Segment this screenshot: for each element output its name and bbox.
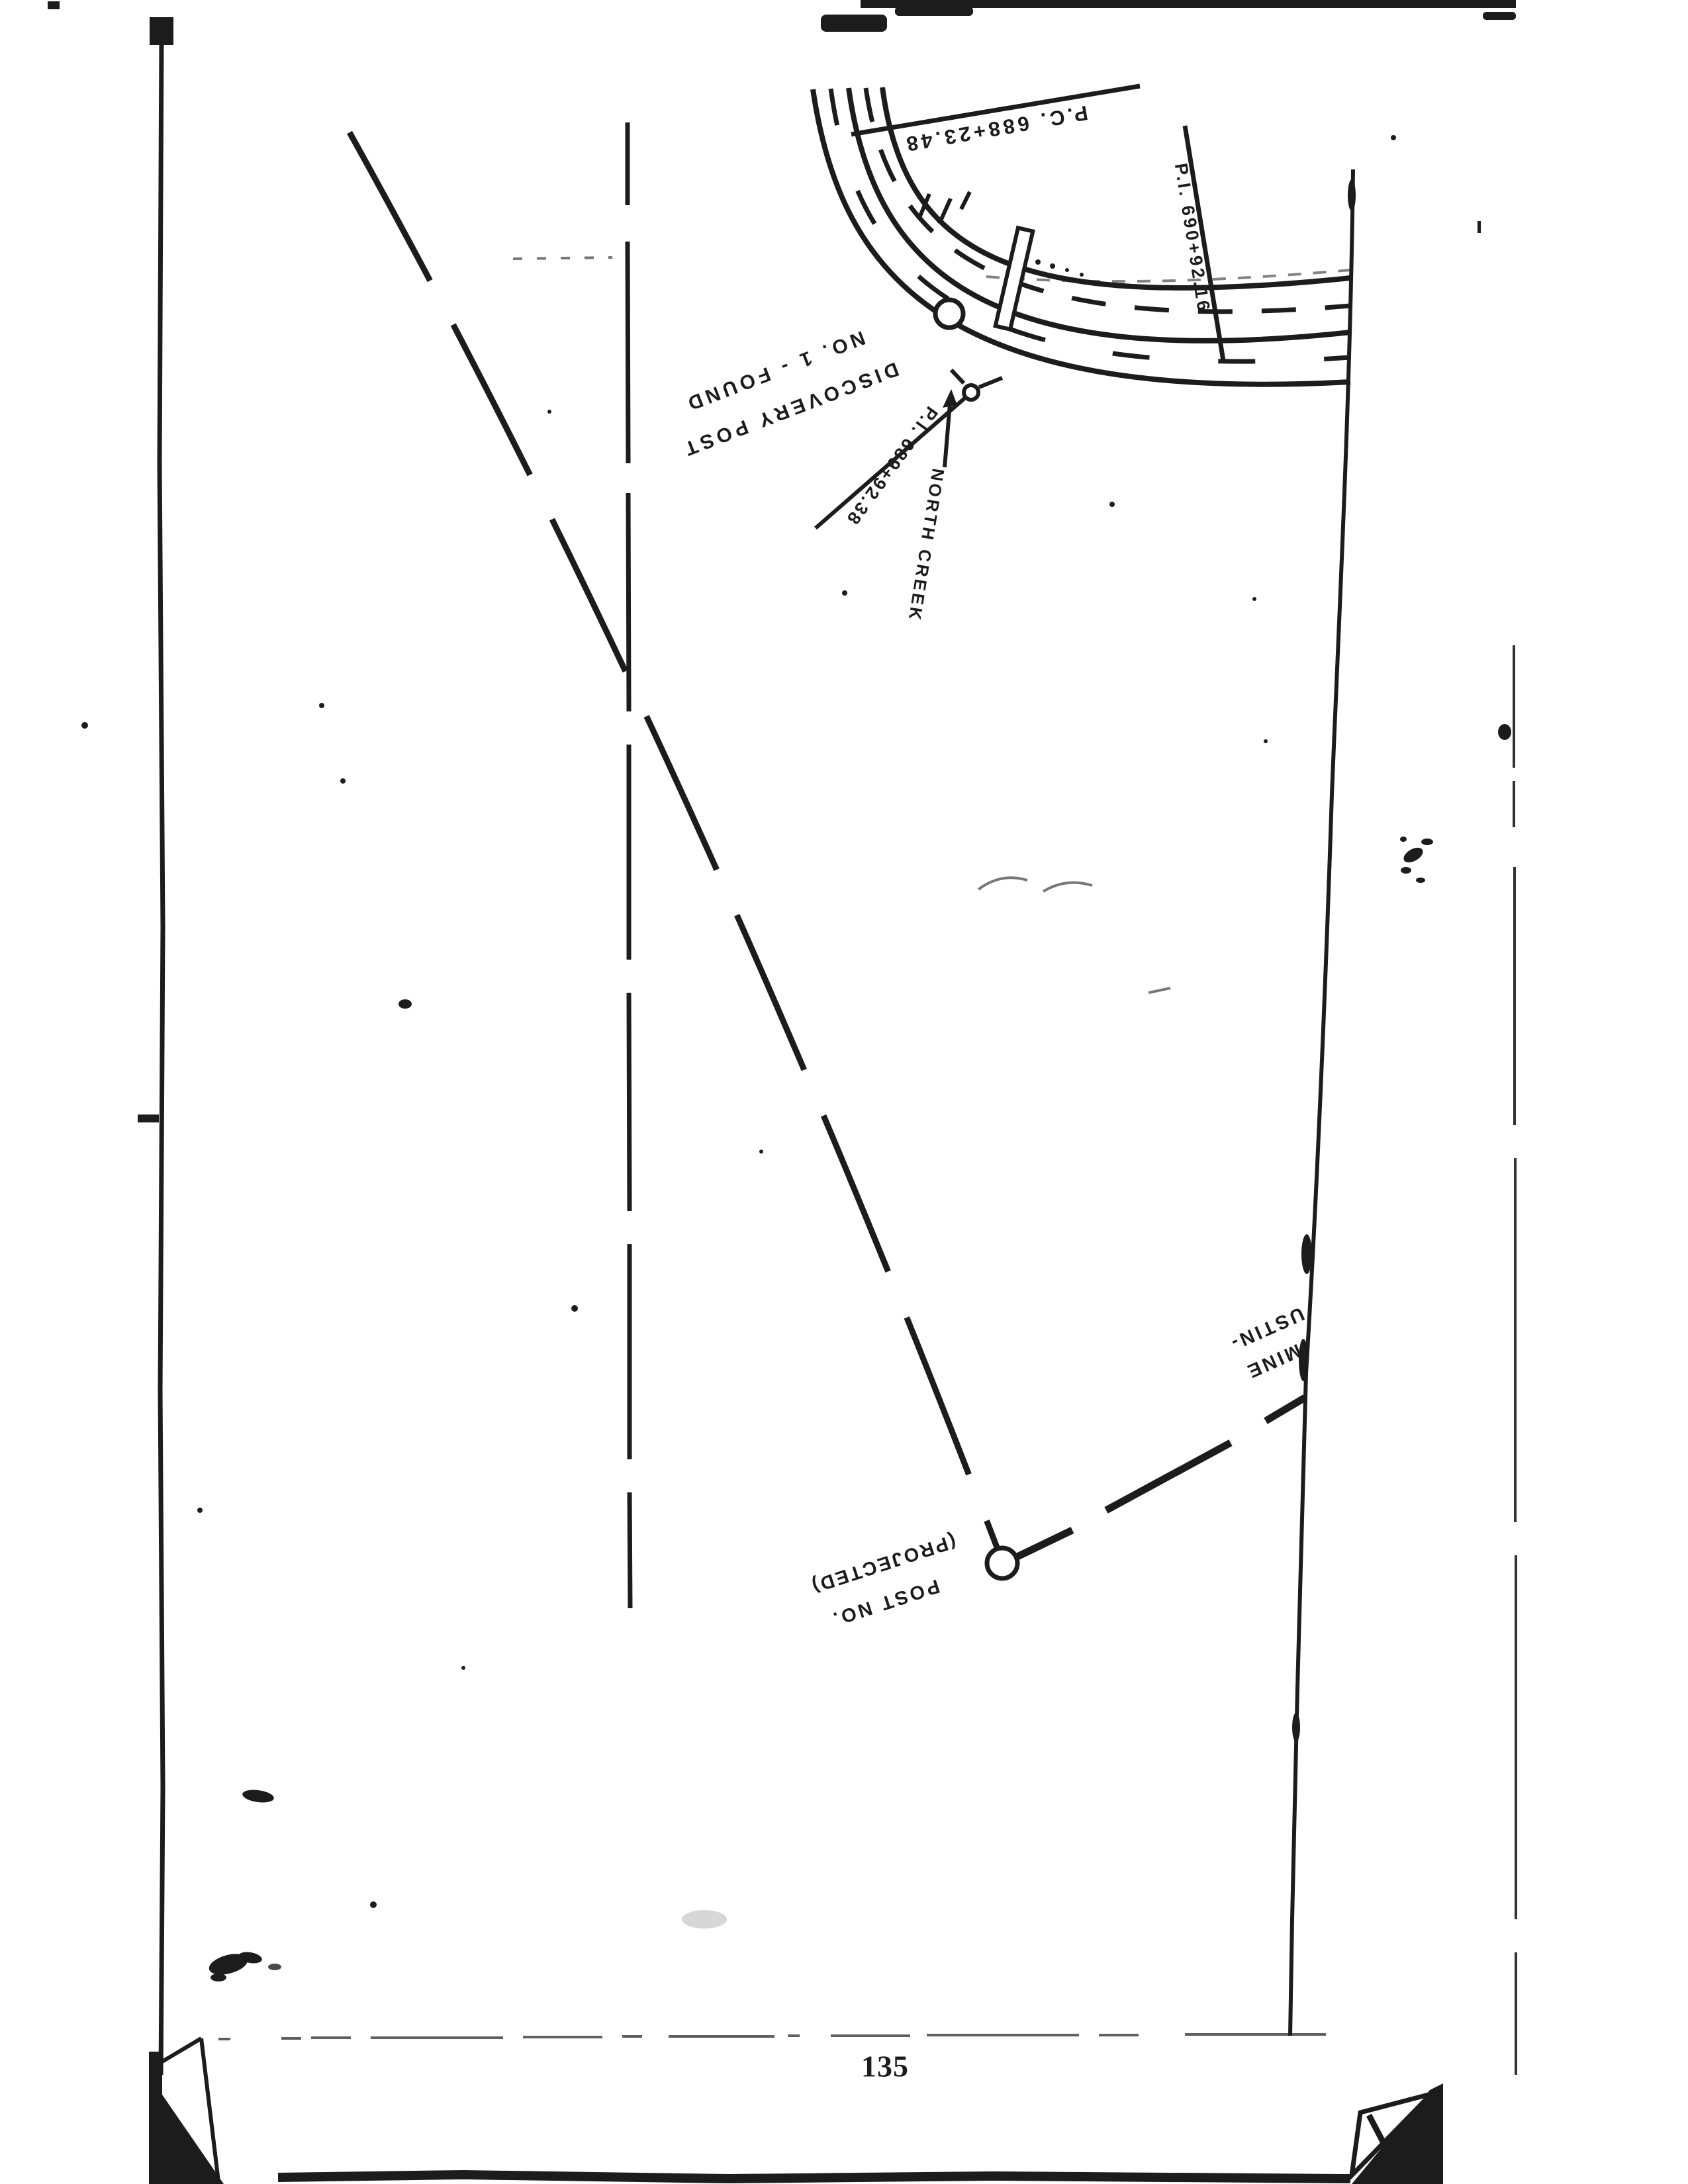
- claim-boundary-dashed-diagonal: [350, 132, 997, 1547]
- right-scan-line: [1514, 645, 1516, 2075]
- claim-post-rectangle: [996, 228, 1033, 329]
- smudge-gray-bottom: [682, 1910, 727, 1929]
- smudge-bottom-left: [207, 1950, 281, 1981]
- scan-specks: [81, 135, 1396, 1908]
- left-edge-top-blob: [150, 17, 173, 45]
- discovery-post-circle: [935, 300, 963, 328]
- scan-artifacts: [48, 0, 1516, 2184]
- pi-point-circle: [964, 385, 978, 400]
- map-boundary-bottom-line: [218, 2034, 1326, 2039]
- north-creek-arrow: [943, 389, 957, 467]
- left-edge-line: [160, 41, 163, 2075]
- pi-point-ticks: [951, 370, 1002, 387]
- scanned-map-page: DISCOVERY POST NO. 1 - FOUND P.C. 688+23…: [0, 0, 1688, 2184]
- faint-dotted-tie-line: [513, 257, 612, 259]
- mine-claim-dashed-line: [1017, 1398, 1305, 1557]
- road-centerline-dashed-lower: [831, 89, 1350, 361]
- station-lines: [816, 86, 1223, 528]
- scratch-arcs: [978, 878, 1170, 993]
- road-curves: [813, 87, 1350, 385]
- bottom-edge-streak: [278, 2175, 1350, 2179]
- page-number: 135: [861, 2049, 909, 2084]
- claim-boundary-dashed-vertical: [628, 122, 630, 1608]
- smudge-right-cluster: [1400, 837, 1433, 883]
- map-boundary-right-line: [1290, 169, 1353, 2036]
- arrowhead-icon: [943, 389, 957, 408]
- projected-post-circle: [987, 1548, 1017, 1578]
- map-linework: [0, 0, 1688, 2184]
- map-boundary-ink-blobs: [1292, 179, 1481, 1742]
- map-boundary: [218, 169, 1353, 2039]
